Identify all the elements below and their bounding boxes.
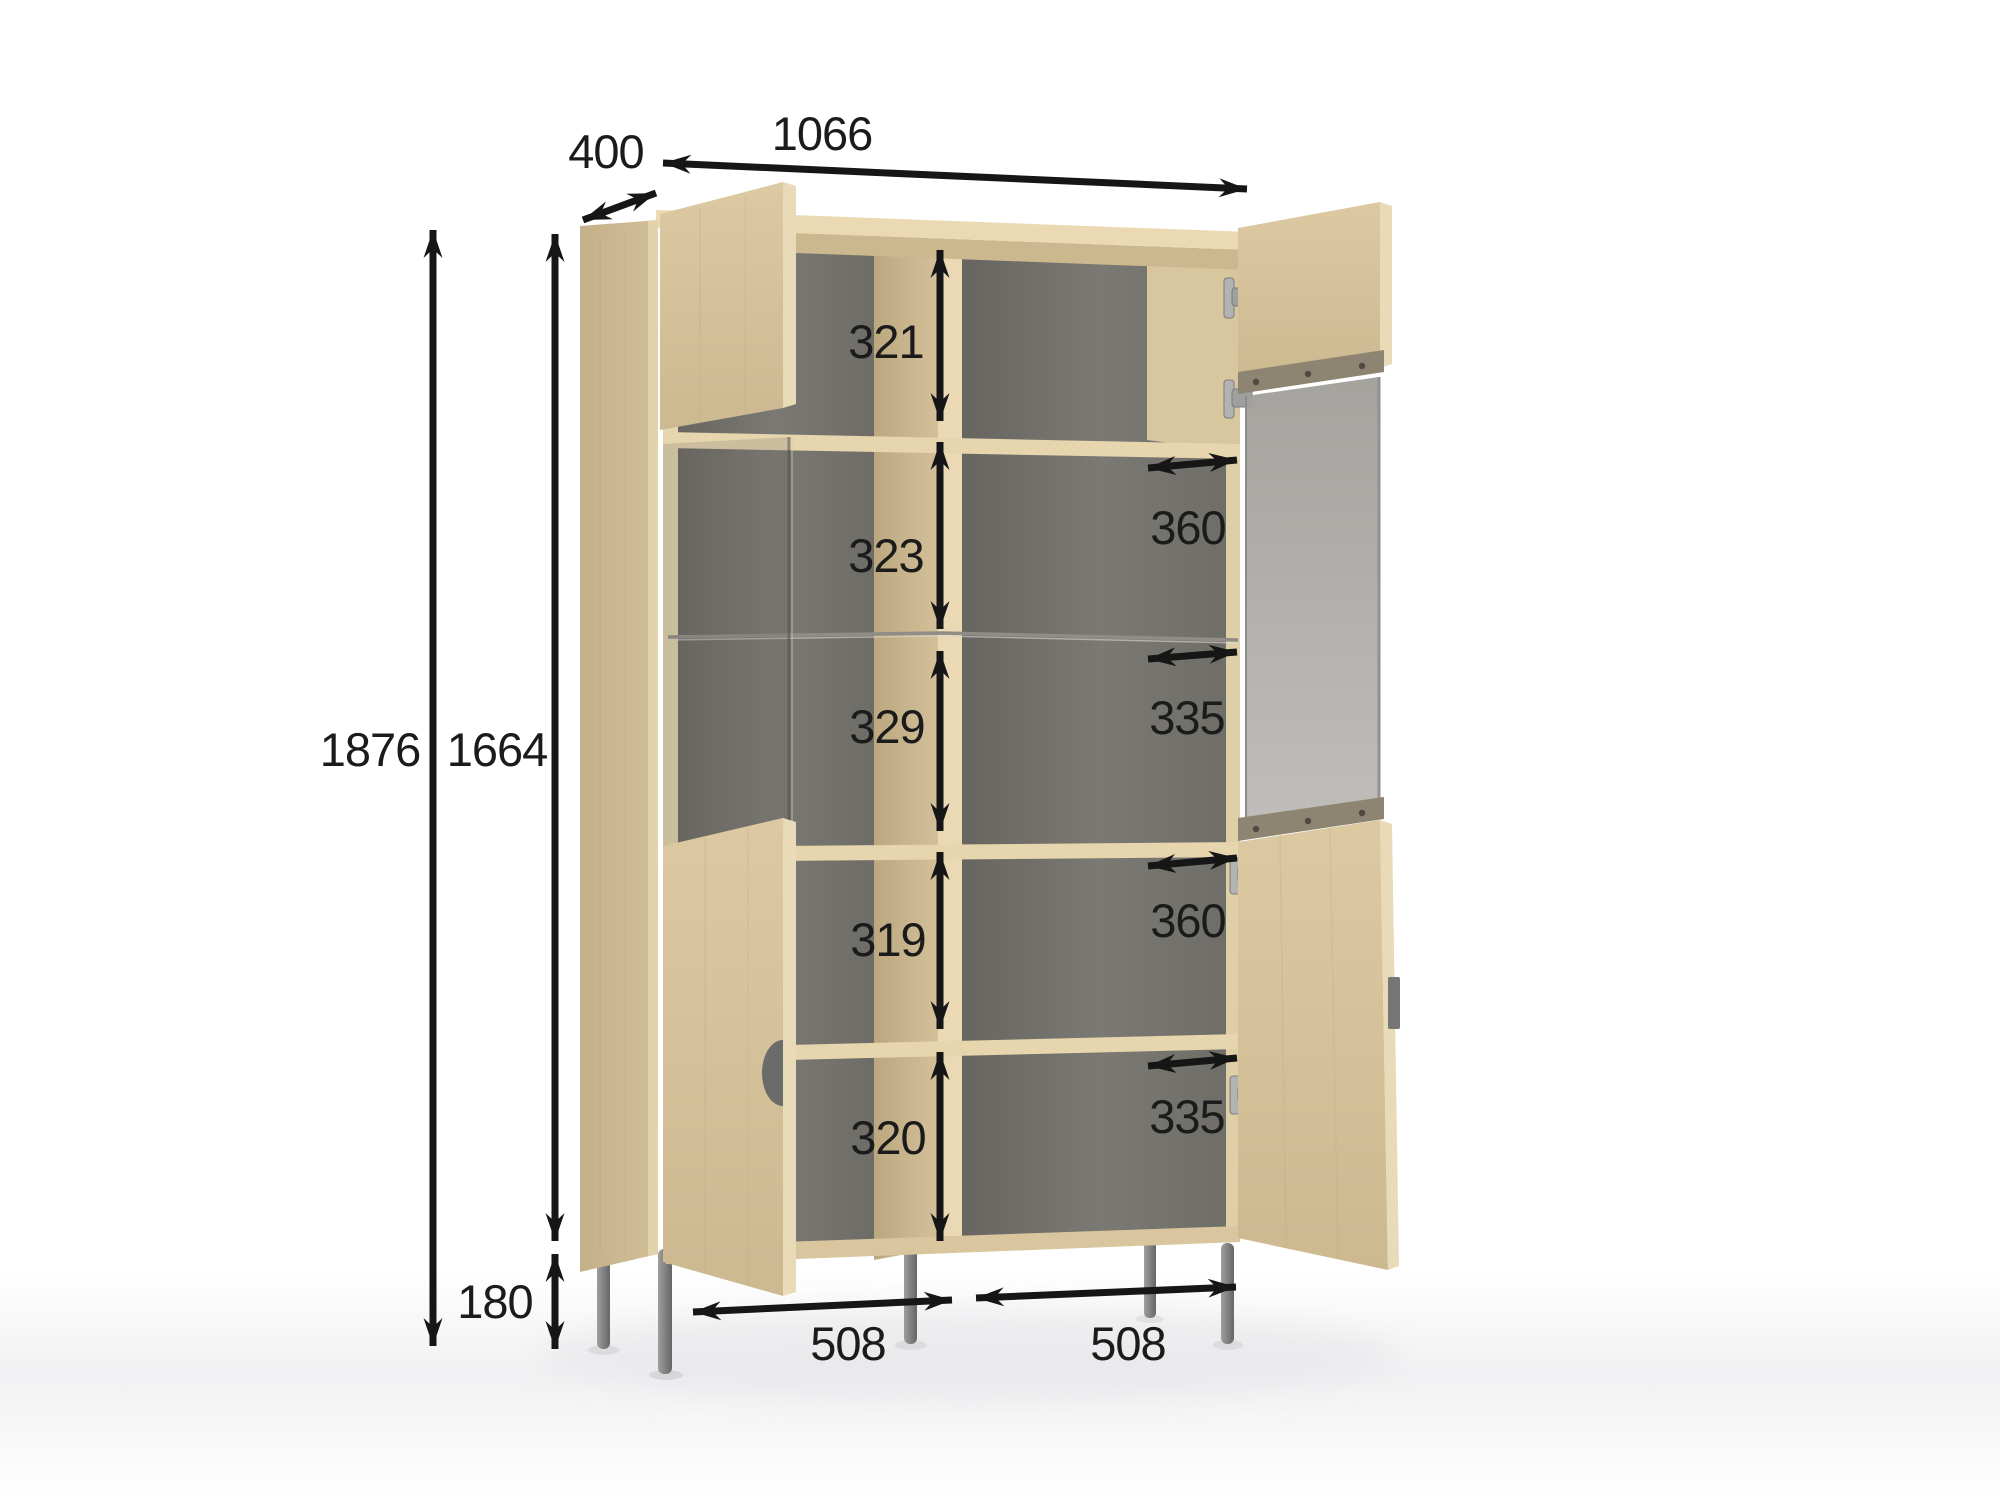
cabinet-dimension-diagram: 400 1066 1876 1664 180 321 323 329 319 3… <box>0 0 2000 1500</box>
dim-label-body-height: 1664 <box>447 723 548 776</box>
left-side-panel <box>580 220 658 1272</box>
dim-label-compartment-height-0: 321 <box>848 315 923 368</box>
leg <box>1221 1243 1234 1344</box>
door-handle <box>1388 977 1400 1029</box>
bottom-right-door <box>1238 820 1400 1270</box>
leg <box>1144 1240 1156 1318</box>
bottom-left-door <box>663 818 796 1296</box>
dim-label-compartment-width-1: 335 <box>1149 691 1224 744</box>
divider-side-face <box>874 248 938 1260</box>
dim-label-base-width-1: 508 <box>1090 1317 1165 1370</box>
top-right-door-edge <box>1380 202 1392 368</box>
dim-arrow-width <box>663 163 1247 189</box>
interior-right-edge <box>1226 446 1240 1236</box>
top-left-door <box>660 182 796 430</box>
dim-label-depth: 400 <box>568 125 643 178</box>
leg <box>904 1245 917 1344</box>
bottom-left-door-edge <box>783 818 796 1296</box>
dim-label-compartment-width-2: 360 <box>1150 894 1225 947</box>
dim-label-compartment-height-3: 319 <box>850 913 925 966</box>
diagram-canvas: 400 1066 1876 1664 180 321 323 329 319 3… <box>0 0 2000 1500</box>
dim-label-leg-height: 180 <box>457 1275 532 1328</box>
leg <box>658 1249 672 1374</box>
dim-arrow-depth <box>583 193 656 220</box>
glass-door-open <box>1246 377 1379 823</box>
dim-label-base-width-0: 508 <box>810 1317 885 1370</box>
dim-label-total-height: 1876 <box>320 723 421 776</box>
dim-label-compartment-height-4: 320 <box>850 1111 925 1164</box>
glass-door-ajar <box>663 437 789 861</box>
dim-label-compartment-height-2: 329 <box>849 700 924 753</box>
dim-label-compartment-height-1: 323 <box>848 529 923 582</box>
dim-label-width: 1066 <box>772 107 873 160</box>
dim-label-compartment-width-3: 335 <box>1149 1090 1224 1143</box>
interior-right-wall <box>1147 246 1240 452</box>
dim-label-compartment-width-0: 360 <box>1150 501 1225 554</box>
top-left-door-edge <box>783 182 796 408</box>
